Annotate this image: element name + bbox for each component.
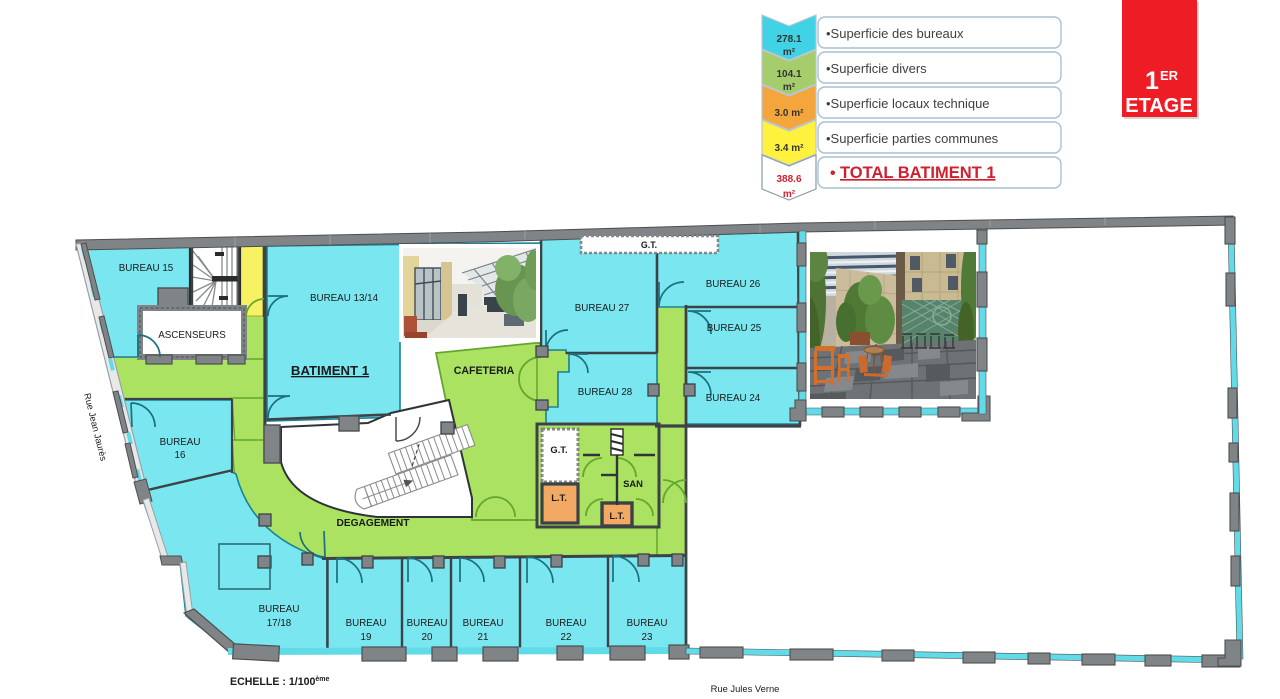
svg-text:BUREAU: BUREAU [346,618,387,629]
svg-text:ECHELLE : 1/100ème: ECHELLE : 1/100ème [230,676,329,688]
svg-text:m²: m² [783,82,796,93]
svg-text:BUREAU: BUREAU [627,618,668,629]
svg-text:19: 19 [361,632,372,643]
svg-text:BUREAU: BUREAU [463,618,504,629]
svg-text:•Superficie locaux technique: •Superficie locaux technique [826,96,990,111]
svg-text:•Superficie divers: •Superficie divers [826,61,927,76]
svg-text:•: • [830,165,836,182]
svg-text:G.T.: G.T. [641,240,657,250]
svg-text:ER: ER [1160,68,1179,83]
svg-text:•Superficie des bureaux: •Superficie des bureaux [826,26,964,41]
svg-text:20: 20 [422,632,433,643]
svg-text:ASCENSEURS: ASCENSEURS [158,330,226,341]
svg-text:3.0 m²: 3.0 m² [775,108,805,119]
svg-text:BUREAU: BUREAU [546,618,587,629]
svg-text:BUREAU 24: BUREAU 24 [706,393,761,404]
svg-text:Rue Jean Jaurès: Rue Jean Jaurès [82,392,109,462]
svg-text:BUREAU 25: BUREAU 25 [707,323,762,334]
svg-text:BUREAU 15: BUREAU 15 [119,263,174,274]
svg-text:1: 1 [1145,67,1159,95]
svg-text:BUREAU: BUREAU [407,618,448,629]
svg-text:G.T.: G.T. [550,444,567,455]
svg-text:23: 23 [642,632,653,643]
svg-text:BUREAU 26: BUREAU 26 [706,279,761,290]
svg-text:388.6: 388.6 [776,174,801,185]
svg-text:L.T.: L.T. [551,492,567,503]
svg-text:16: 16 [175,450,186,461]
svg-text:SAN: SAN [623,478,643,489]
svg-text:BUREAU 27: BUREAU 27 [575,303,629,314]
svg-text:104.1: 104.1 [776,69,801,80]
svg-text:278.1: 278.1 [776,34,801,45]
svg-text:CAFETERIA: CAFETERIA [454,365,515,377]
svg-text:DEGAGEMENT: DEGAGEMENT [336,518,410,529]
svg-text:22: 22 [561,632,572,643]
svg-text:BATIMENT 1: BATIMENT 1 [291,363,369,378]
svg-text:L.T.: L.T. [610,511,625,521]
svg-text:ETAGE: ETAGE [1125,95,1192,117]
svg-text:m²: m² [783,47,796,58]
svg-text:BUREAU 13/14: BUREAU 13/14 [310,293,379,304]
svg-text:•Superficie parties communes: •Superficie parties communes [826,131,999,146]
svg-text:BUREAU 28: BUREAU 28 [578,387,633,398]
svg-text:BUREAU: BUREAU [259,604,300,615]
svg-text:Rue Jules Verne: Rue Jules Verne [711,683,780,694]
svg-text:17/18: 17/18 [267,618,292,629]
svg-text:BUREAU: BUREAU [160,437,201,448]
svg-text:21: 21 [478,632,489,643]
svg-text:m²: m² [783,189,796,200]
svg-text:3.4 m²: 3.4 m² [775,143,805,154]
svg-text:TOTAL BATIMENT 1: TOTAL BATIMENT 1 [840,164,996,182]
